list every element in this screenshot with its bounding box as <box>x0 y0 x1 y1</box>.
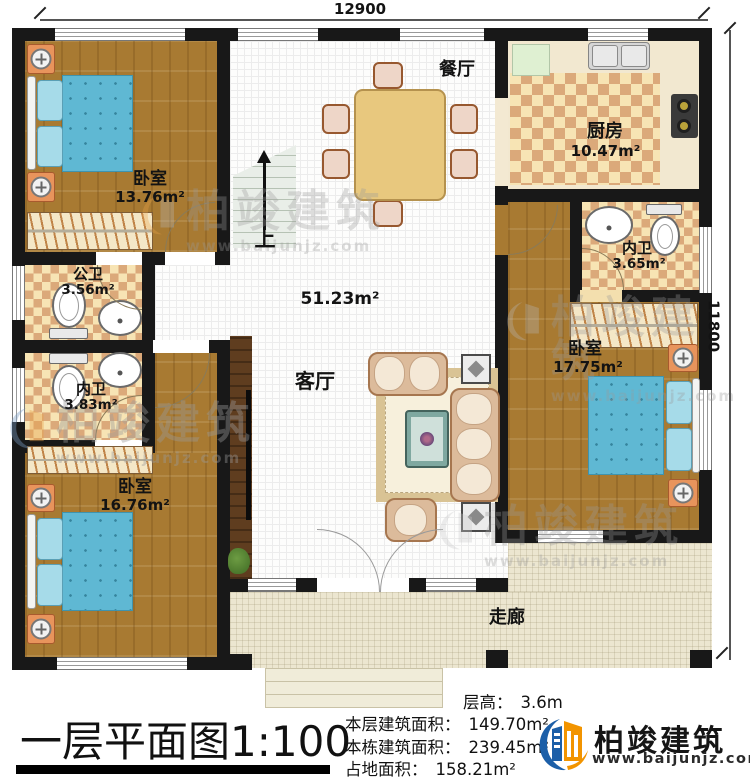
stairs-arrow-head <box>257 150 271 163</box>
wall-baths-right <box>142 265 155 453</box>
bed-pillow <box>666 381 692 424</box>
passage-kitchen <box>495 98 508 186</box>
door-opening-bath-public <box>96 252 142 265</box>
stat-label: 占地面积： <box>345 760 428 779</box>
dimension-tick <box>34 7 47 20</box>
kitchen-sink-basin <box>621 45 647 67</box>
bed-pillow <box>37 80 63 121</box>
room-area-kitchen: 10.47m² <box>558 143 653 160</box>
dining-chair <box>322 149 350 179</box>
wall-bedroomtl-right <box>217 28 230 265</box>
room-area-bath-inner-left: 3.83m² <box>53 398 129 413</box>
window-dining-right <box>400 28 484 41</box>
end-table <box>461 502 491 532</box>
stat-label: 本栋建筑面积： <box>345 738 461 757</box>
stat-floor-area: 本层建筑面积：149.70m² <box>345 711 549 735</box>
room-label-bedroom-bl: 卧室 <box>97 478 173 497</box>
door-opening-bath-inner-right <box>580 290 622 302</box>
bed-headboard <box>27 76 36 170</box>
window-bedroom-right-bottom <box>538 530 603 543</box>
window-living-left <box>248 578 296 592</box>
door-opening-bedroom-right <box>495 205 508 255</box>
dining-table <box>354 89 446 201</box>
kitchen-sink-basin <box>592 45 618 67</box>
room-area-bedroom-bl: 16.76m² <box>92 497 178 514</box>
dimension-line-right <box>729 30 731 660</box>
sofa-cushion <box>456 428 492 460</box>
room-area-bath-inner-right: 3.65m² <box>599 257 679 272</box>
sofa-cushion <box>394 504 427 536</box>
corridor-pillar <box>486 650 508 668</box>
bed-headboard <box>27 514 36 609</box>
room-label-bath-inner-right: 内卫 <box>604 240 670 257</box>
room-area-living: 51.23m² <box>300 290 380 309</box>
stat-label: 本层建筑面积： <box>345 715 461 734</box>
door-opening-bedroom-bl <box>153 340 209 353</box>
floor-corridor-right <box>508 543 712 592</box>
bed-pillow <box>37 518 63 560</box>
title-underline <box>16 765 330 774</box>
stairs-up-label: 上 <box>248 228 282 251</box>
stove-burner <box>677 99 691 113</box>
bed-pillow <box>37 126 63 167</box>
dimension-tick <box>716 647 729 660</box>
sofa-cushion <box>456 463 492 495</box>
sofa-cushion <box>456 393 492 425</box>
dining-chair <box>373 62 403 89</box>
dining-chair <box>450 104 478 134</box>
window-kitchen <box>588 28 648 41</box>
window-bedroom-bl <box>57 657 187 670</box>
tv <box>246 390 251 520</box>
room-label-dining: 餐厅 <box>425 60 489 80</box>
nightstand-lamp <box>668 479 698 507</box>
dimension-right-value: 11800 <box>705 300 722 352</box>
floor-hallway <box>155 265 230 340</box>
wardrobe <box>27 212 153 250</box>
sofa-cushion <box>374 356 405 391</box>
room-label-corridor: 走廊 <box>475 608 539 628</box>
stat-floor-height: 层高：3.6m <box>463 689 563 713</box>
stat-value: 3.6m <box>521 693 563 712</box>
room-label-bath-inner-left: 内卫 <box>58 381 124 398</box>
stairs-arrow-stem <box>263 162 266 230</box>
window-bath-inner-left <box>12 368 25 422</box>
room-area-bath-public: 3.56m² <box>50 283 126 298</box>
dimension-top-value: 12900 <box>318 1 402 18</box>
bed-headboard <box>692 378 700 473</box>
company-logo-icon <box>534 713 590 773</box>
room-label-bedroom-tl: 卧室 <box>112 170 188 189</box>
nightstand-lamp <box>27 484 55 512</box>
wall-bedroombl-right <box>217 340 230 670</box>
dimension-line-top <box>40 19 708 21</box>
wardrobe <box>27 446 153 474</box>
coffee-table-flowers <box>420 432 434 446</box>
stat-value: 158.21m² <box>436 760 516 779</box>
toilet-tank <box>49 328 88 339</box>
dining-chair <box>450 149 478 179</box>
window-dining-left <box>238 28 318 41</box>
nightstand-lamp <box>27 44 55 74</box>
plan-title: 一层平面图1:100 <box>20 708 351 769</box>
bed-pillow <box>37 564 63 606</box>
entry-steps <box>265 668 443 708</box>
stat-label: 层高： <box>463 693 513 712</box>
stat-building-area: 本栋建筑面积：239.45m² <box>345 734 549 758</box>
window-bath-public <box>12 266 25 320</box>
stat-land-area: 占地面积：158.21m² <box>345 756 516 780</box>
bed-mattress <box>62 512 133 611</box>
entry-step-line <box>265 694 443 695</box>
bed-pillow <box>666 428 692 471</box>
nightstand-lamp <box>27 614 55 644</box>
room-area-bedroom-right: 17.75m² <box>542 359 634 376</box>
entry-step-line <box>265 681 443 682</box>
room-label-bedroom-right: 卧室 <box>545 340 625 359</box>
kitchen-fridge <box>512 44 550 76</box>
room-label-bath-public: 公卫 <box>55 266 121 283</box>
dining-chair <box>373 200 403 227</box>
wall-kitchen-bottom <box>495 189 712 202</box>
bed-mattress <box>588 376 664 475</box>
room-label-living: 客厅 <box>283 370 347 392</box>
end-table <box>461 354 491 384</box>
floor-plan: 柏竣建筑 www.baijunjz.com 柏竣建筑 www.baijunjz.… <box>0 0 750 780</box>
toilet-tank <box>646 204 682 215</box>
wall-between-baths <box>12 340 155 353</box>
corridor-pillar <box>228 654 252 670</box>
wall-bathright-left <box>570 202 582 290</box>
toilet-tank <box>49 353 88 364</box>
company-logo-url: www.baijunjz.com <box>592 751 750 767</box>
dimension-tick <box>698 7 711 20</box>
room-label-kitchen: 厨房 <box>560 122 650 142</box>
window-bedroom-tl <box>55 28 185 41</box>
bed-mattress <box>62 75 133 172</box>
stove-burner <box>677 119 691 133</box>
nightstand-lamp <box>668 344 698 372</box>
window-bedroom-right-east <box>699 390 712 470</box>
floor-corridor <box>230 592 712 668</box>
corridor-pillar <box>690 650 712 668</box>
sofa-cushion <box>409 356 440 391</box>
window-bath-inner-right-east <box>699 227 712 293</box>
plant <box>228 548 250 574</box>
room-area-bedroom-tl: 13.76m² <box>108 189 192 206</box>
dining-chair <box>322 104 350 134</box>
door-opening-bedroom-tl <box>165 252 215 265</box>
nightstand-lamp <box>27 172 55 202</box>
